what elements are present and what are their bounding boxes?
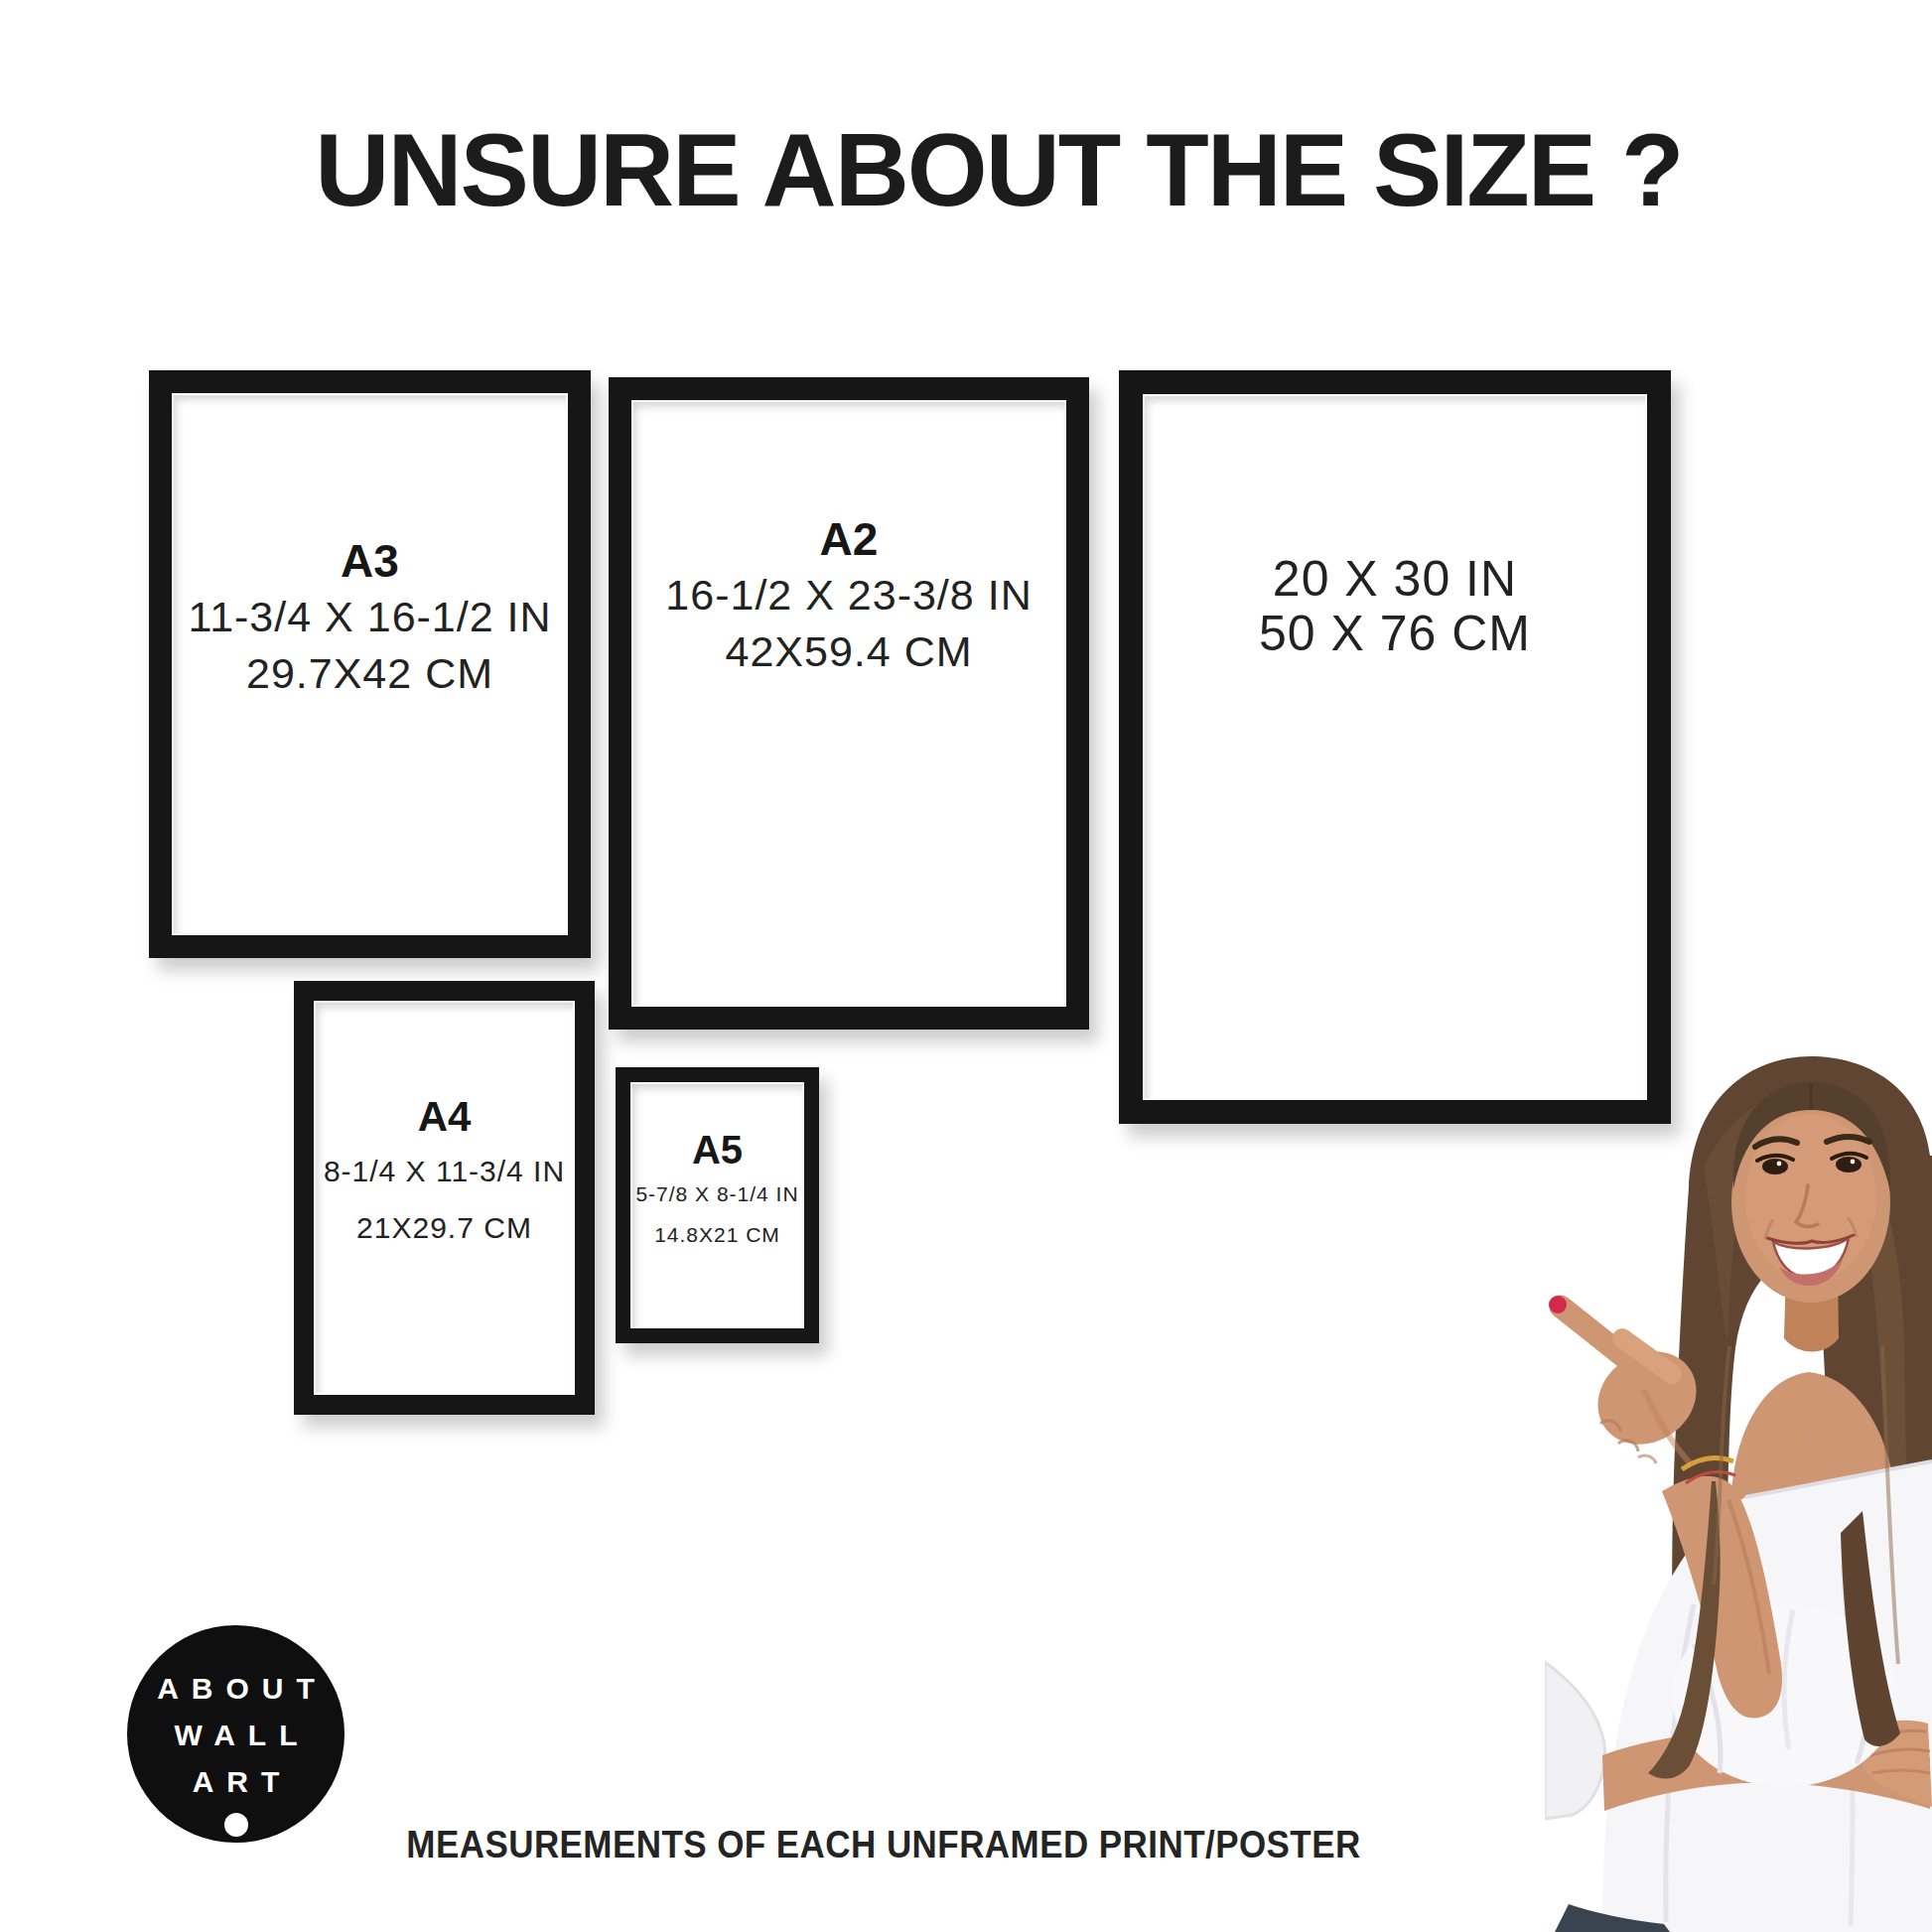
- frame-a3: A3 11-3/4 X 16-1/2 IN 29.7X42 CM: [149, 370, 591, 958]
- frame-20x30-inches: 20 X 30 IN: [1143, 552, 1647, 607]
- frame-a4-inches: 8-1/4 X 11-3/4 IN: [314, 1143, 575, 1199]
- frame-a4-cm: 21X29.7 CM: [314, 1199, 575, 1256]
- frame-20x30-cm: 50 X 76 CM: [1143, 607, 1647, 661]
- frame-a5-text: A5 5-7/8 X 8-1/4 IN 14.8X21 CM: [630, 1126, 804, 1255]
- frame-20x30: 20 X 30 IN 50 X 76 CM: [1119, 370, 1671, 1124]
- size-guide-page: UNSURE ABOUT THE SIZE ? A3 11-3/4 X 16-1…: [0, 0, 1932, 1932]
- frame-a2-text: A2 16-1/2 X 23-3/8 IN 42X59.4 CM: [631, 511, 1066, 680]
- sleeve-cuff: [1545, 1662, 1604, 1819]
- frame-20x30-text: 20 X 30 IN 50 X 76 CM: [1143, 552, 1647, 661]
- frame-a5-inches: 5-7/8 X 8-1/4 IN: [630, 1173, 804, 1214]
- brand-logo-line1: ABOUT: [127, 1665, 345, 1712]
- frame-a3-text: A3 11-3/4 X 16-1/2 IN 29.7X42 CM: [172, 533, 568, 702]
- page-title: UNSURE ABOUT THE SIZE ?: [66, 111, 1932, 229]
- footer-caption: MEASUREMENTS OF EACH UNFRAMED PRINT/POST…: [70, 1824, 1697, 1866]
- frame-a2-inches: 16-1/2 X 23-3/8 IN: [631, 567, 1066, 623]
- frame-a2-cm: 42X59.4 CM: [631, 623, 1066, 680]
- frame-a3-cm: 29.7X42 CM: [172, 645, 568, 702]
- brand-logo-line3: ART: [127, 1758, 345, 1805]
- frame-a5-label: A5: [630, 1126, 804, 1173]
- frame-a3-label: A3: [172, 533, 568, 589]
- brand-logo-line2: WALL: [127, 1712, 345, 1758]
- frame-a4-label: A4: [314, 1091, 575, 1143]
- frame-a2-label: A2: [631, 511, 1066, 567]
- frame-a4-text: A4 8-1/4 X 11-3/4 IN 21X29.7 CM: [314, 1091, 575, 1256]
- brand-logo-text: ABOUT WALL ART: [127, 1665, 345, 1805]
- frame-a3-inches: 11-3/4 X 16-1/2 IN: [172, 589, 568, 645]
- woman-face: [1731, 1082, 1890, 1303]
- woman-photo: [1545, 1048, 1932, 1932]
- frame-a4: A4 8-1/4 X 11-3/4 IN 21X29.7 CM: [294, 981, 595, 1415]
- frame-a5-cm: 14.8X21 CM: [630, 1214, 804, 1255]
- brand-logo-badge: ABOUT WALL ART: [127, 1625, 345, 1843]
- frame-a2: A2 16-1/2 X 23-3/8 IN 42X59.4 CM: [609, 377, 1089, 1030]
- frame-a5: A5 5-7/8 X 8-1/4 IN 14.8X21 CM: [616, 1067, 819, 1343]
